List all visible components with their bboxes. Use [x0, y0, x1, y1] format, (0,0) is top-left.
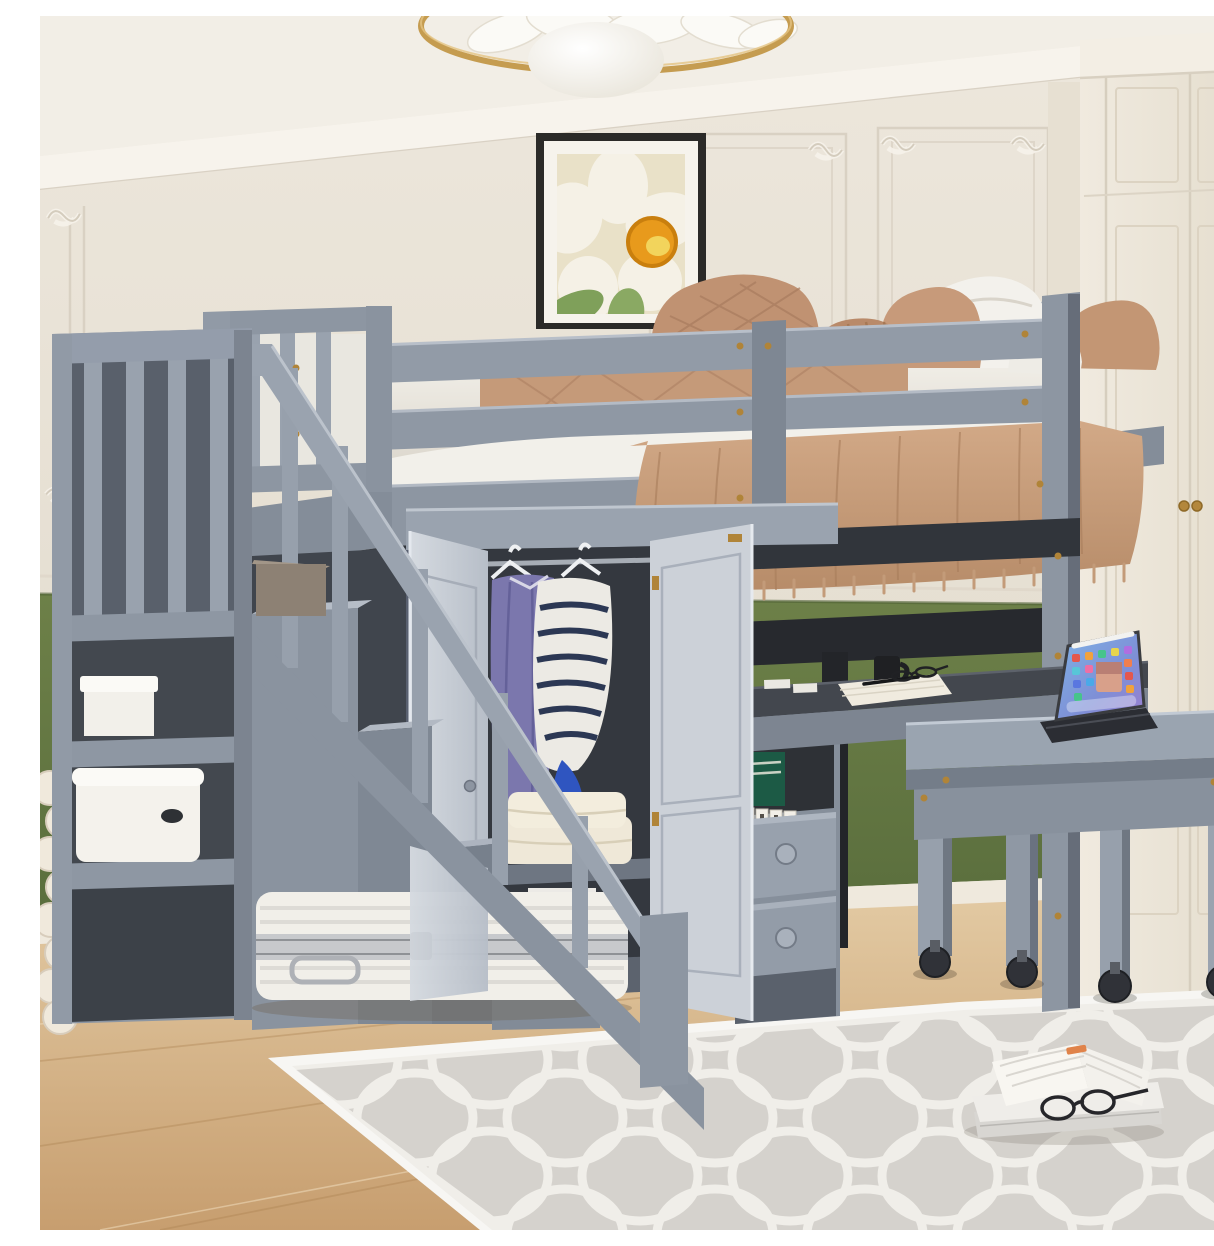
- newel-post: [640, 912, 688, 1088]
- door-knob-left: [465, 781, 476, 792]
- drawer-knob-lower: [776, 928, 796, 948]
- gift-box: [80, 676, 158, 736]
- wardrobe-cornice: [406, 504, 838, 550]
- storage-bin: [72, 768, 204, 862]
- lamp-globe: [528, 22, 664, 98]
- bed-mid-post: [752, 320, 786, 524]
- step-box-brown: [252, 560, 330, 616]
- product-photo: Gray loft bed with storage staircase, op…: [40, 16, 1214, 1230]
- scene-canvas: Gray loft bed with storage staircase, op…: [40, 16, 1214, 1230]
- side-shelf-unit: [52, 328, 252, 1024]
- drawer-knob-upper: [776, 844, 796, 864]
